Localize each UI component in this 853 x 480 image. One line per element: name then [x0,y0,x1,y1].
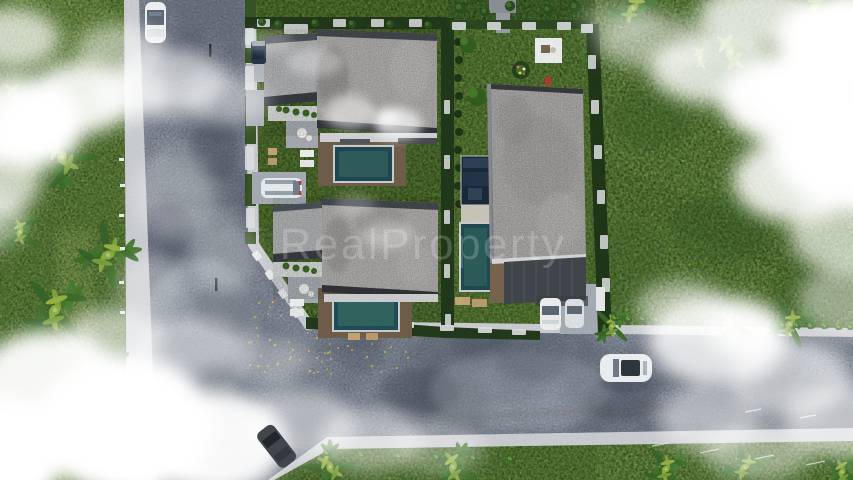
svg-text:RealProperty: RealProperty [280,220,567,269]
